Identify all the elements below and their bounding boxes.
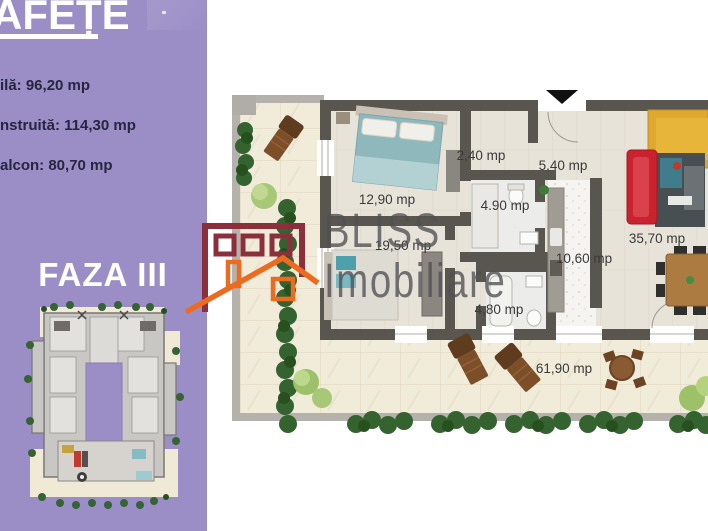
label-terrace: 61,90 mp xyxy=(519,361,609,376)
brochure-page: AFEȚE ilă: 96,20 mp nstruită: 114,30 mp … xyxy=(0,0,708,531)
label-living-room: 35,70 mp xyxy=(612,231,702,246)
label-kitchen: 10,60 mp xyxy=(539,251,629,266)
label-bathroom-2: 4,80 mp xyxy=(454,302,544,317)
label-bedroom-2: 19,50 mp xyxy=(358,238,448,253)
label-entry: 5,40 mp xyxy=(518,158,608,173)
label-hallway: 2,40 mp xyxy=(436,148,526,163)
label-bedroom-1: 12,90 mp xyxy=(342,192,432,207)
label-bathroom-1: 4.90 mp xyxy=(460,198,550,213)
